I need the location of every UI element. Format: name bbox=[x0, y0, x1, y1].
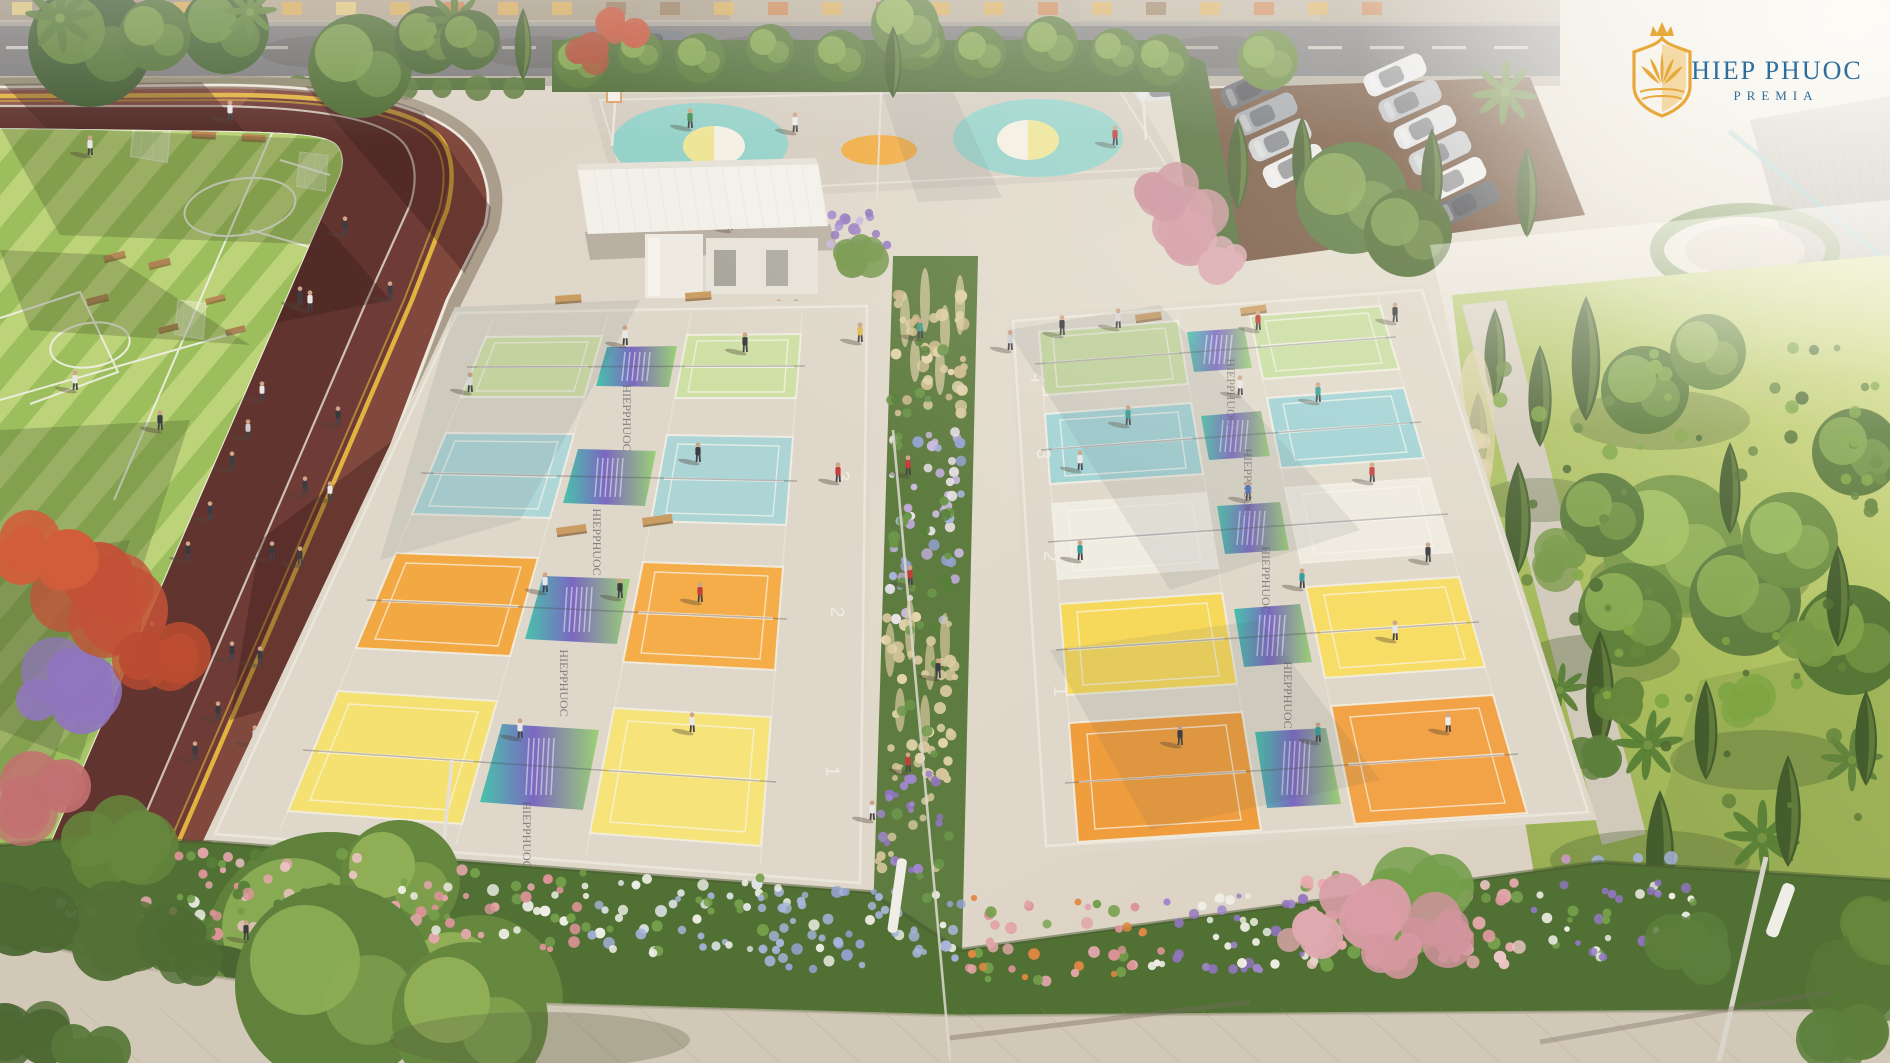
svg-text:HIEP PHUOC: HIEP PHUOC bbox=[1691, 56, 1862, 85]
svg-text:PREMIA: PREMIA bbox=[1733, 88, 1818, 103]
